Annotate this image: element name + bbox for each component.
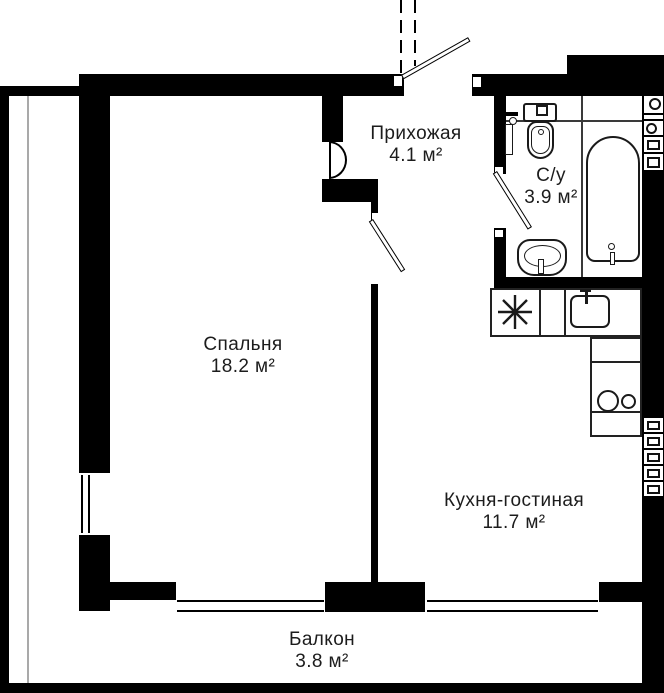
- room-area: 3.9 м²: [524, 187, 577, 209]
- wall-bottom-right: [599, 582, 642, 602]
- bedroom-door-icon: [329, 141, 347, 179]
- room-label-bedroom: Спальня 18.2 м²: [203, 334, 282, 378]
- stove-burner-small-icon: [621, 394, 636, 409]
- room-name: Кухня-гостиная: [444, 490, 584, 512]
- wall-left-upper: [79, 74, 110, 473]
- wall-tap-icon: [502, 112, 518, 116]
- stove-burner-large-icon: [597, 390, 619, 412]
- balcony-window-1-icon: [177, 600, 324, 612]
- vent-block-square-4: [644, 434, 663, 448]
- bathroom-sink-tap: [538, 259, 544, 274]
- room-label-hallway: Прихожая 4.1 м²: [370, 123, 461, 167]
- wall-left-outer: [0, 86, 9, 693]
- room-area: 11.7 м²: [444, 512, 584, 534]
- balcony-side-line: [27, 96, 29, 683]
- balcony-window-2-icon: [427, 600, 598, 612]
- towel-rail-icon: [505, 124, 513, 155]
- toilet-dot: [538, 129, 544, 135]
- entrance-door-icon: [401, 37, 470, 79]
- room-label-balcony: Балкон 3.8 м²: [289, 629, 355, 673]
- room-label-kitchen: Кухня-гостиная 11.7 м²: [444, 490, 584, 534]
- vent-block-circle-2: [644, 121, 663, 135]
- counter-divider-1: [539, 288, 541, 337]
- kitchen-sink-tap-stem: [585, 290, 588, 304]
- toilet-button-icon: [536, 105, 548, 116]
- room-name: Прихожая: [370, 123, 461, 145]
- wall-partition-main: [371, 284, 378, 582]
- cap-entrance-left: [394, 76, 402, 86]
- bathtub-drain: [608, 243, 615, 250]
- room-area: 18.2 м²: [203, 356, 282, 378]
- vent-block-square-1: [644, 137, 663, 152]
- room-area: 4.1 м²: [370, 145, 461, 167]
- vent-block-square-6: [644, 466, 663, 480]
- kitchen-sink-icon: [570, 295, 610, 328]
- wall-bathroom-bottom: [494, 277, 642, 288]
- wall-hallway-bottom: [322, 179, 378, 202]
- vent-block-square-7: [644, 482, 663, 496]
- kitchen-counter-right: [590, 337, 642, 437]
- vent-block-circle-1: [644, 96, 663, 113]
- wall-bottom-outer: [0, 683, 664, 693]
- kitchen-door-icon: [369, 219, 405, 272]
- cap-entrance-right: [473, 77, 481, 87]
- room-area: 3.8 м²: [289, 651, 355, 673]
- room-name: С/у: [524, 165, 577, 187]
- wall-top-step: [567, 55, 664, 75]
- vent-block-square-3: [644, 418, 663, 432]
- room-name: Балкон: [289, 629, 355, 651]
- wall-top-main: [79, 74, 404, 96]
- wall-bedroom-bottom: [110, 582, 176, 600]
- cap-partition-bottom: [372, 277, 378, 284]
- vent-block-square-5: [644, 450, 663, 464]
- wall-hallway-left: [322, 96, 343, 142]
- room-name: Спальня: [203, 334, 282, 356]
- entrance-dashed-line-1: [400, 0, 402, 74]
- entrance-dashed-line-2: [414, 0, 416, 66]
- counter-divider-3: [590, 361, 642, 363]
- bath-zone-line-vertical: [581, 96, 583, 277]
- wall-top-right: [472, 74, 664, 96]
- wall-left-lower: [79, 535, 110, 611]
- fridge-icon: [496, 293, 534, 331]
- bathtub-tap: [610, 252, 615, 265]
- vent-block-square-2: [644, 154, 663, 170]
- vent-gap-strip: [644, 115, 663, 119]
- wall-bottom-middle: [325, 582, 425, 612]
- wall-top-left-ledge: [0, 86, 79, 96]
- counter-divider-2: [564, 288, 566, 337]
- bedroom-window-icon: [81, 475, 90, 533]
- room-label-bathroom: С/у 3.9 м²: [524, 165, 577, 209]
- floor-plan: Прихожая 4.1 м² С/у 3.9 м² Спальня 18.2 …: [0, 0, 664, 693]
- counter-divider-4: [590, 411, 642, 413]
- cap-bathdoor-bottom: [495, 230, 503, 237]
